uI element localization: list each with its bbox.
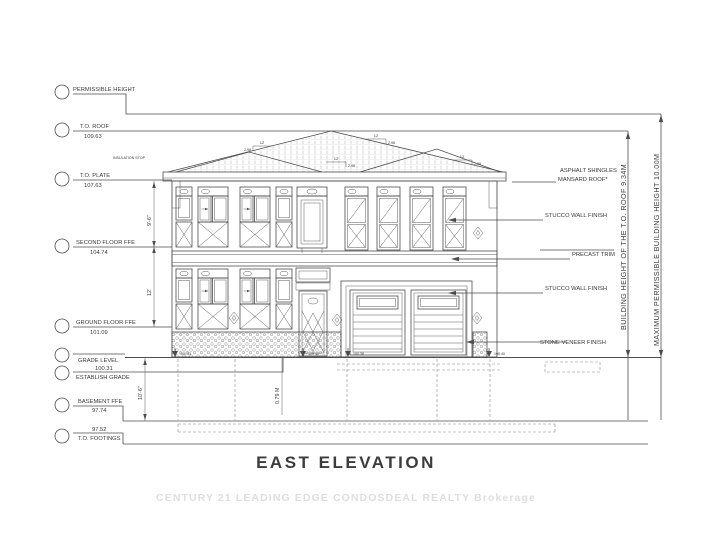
level-value: 100.31	[95, 366, 113, 372]
right-corbel	[489, 181, 497, 208]
level-value: 109.63	[84, 134, 102, 140]
precast-trim-band	[172, 251, 497, 266]
dim-plate-to-second: 9'-6"	[147, 215, 153, 226]
label-stucco-upper: STUCCO WALL FINISH	[448, 213, 607, 222]
floor-dims: 9'-6" 12' 10'-6" 0.79 M	[138, 181, 282, 421]
finish-text: STONE VENEER FINISH	[540, 340, 606, 346]
window	[240, 187, 270, 247]
slope-run: 12	[460, 154, 465, 159]
slope-run: 12	[334, 156, 339, 161]
finish-text: STUCCO WALL FINISH	[545, 286, 607, 292]
garage-door-right	[411, 290, 466, 355]
spot-elevation: 100.40	[494, 352, 505, 356]
finish-text: ASPHALT SHINGLES	[560, 168, 617, 174]
slope-rise: 2.98	[348, 164, 355, 168]
level-name: T.O. ROOF	[80, 124, 109, 130]
window	[345, 187, 368, 250]
window	[198, 269, 228, 329]
diamond-accent	[332, 314, 342, 326]
slope-rise: 2.98	[388, 141, 395, 145]
finish-text: PRECAST TRIM	[572, 252, 615, 258]
entry-tall-window	[297, 187, 327, 253]
level-name: GROUND FLOOR FFE	[76, 320, 136, 326]
dim-sill: 0.79 M	[275, 387, 281, 404]
label-asphalt-shingles: ASPHALT SHINGLES MANSARD ROOF*	[512, 168, 617, 183]
level-name: T.O. FOOTINGS	[78, 436, 121, 442]
window	[276, 269, 292, 329]
label-precast-trim: PRECAST TRIM	[451, 250, 615, 261]
grade-and-foundation: 100.33 100.40 100.38 100.40	[123, 348, 661, 444]
elevation-sheet: 12 2.98 12 2.98 12 2.98 12 2.98 INSULATI…	[0, 0, 720, 540]
window	[410, 187, 433, 250]
diamond-accent	[229, 312, 239, 324]
level-footings: 97.52 T.O. FOOTINGS	[55, 427, 123, 444]
slope-rise: 2.98	[244, 148, 251, 152]
max-height-text: MAXIMUM PERMISSIBLE BUILDING HEIGHT 10.0…	[652, 154, 661, 346]
slope-rise: 2.98	[474, 162, 481, 166]
diamond-accent	[472, 312, 482, 324]
level-name: GRADE LEVEL	[78, 358, 119, 364]
window	[176, 187, 192, 247]
window	[240, 269, 270, 329]
level-value: 97.74	[92, 408, 107, 414]
spot-elevation: 100.38	[353, 352, 364, 356]
insulation-stop-note: INSULATION STOP	[113, 156, 146, 160]
level-name: SECOND FLOOR FFE	[76, 240, 135, 246]
fascia	[163, 172, 506, 181]
level-basement: BASEMENT FFE 97.74	[55, 398, 123, 421]
level-name: BASEMENT FFE	[78, 399, 122, 405]
level-value: 104.74	[90, 250, 109, 256]
building-height-text: BUILDING HEIGHT OF THE T.O. ROOF 9.34M	[619, 164, 628, 330]
window	[176, 269, 192, 329]
spot-elevation: 100.40	[308, 352, 319, 356]
max-permissible-height-dim: MAXIMUM PERMISSIBLE BUILDING HEIGHT 10.0…	[652, 114, 663, 420]
drawing-title: EAST ELEVATION	[256, 453, 436, 472]
diamond-accent	[473, 227, 483, 239]
finish-text: STUCCO WALL FINISH	[545, 213, 607, 219]
garage-door-left	[350, 290, 405, 355]
dim-grade-to-footing: 10'-6"	[138, 386, 144, 400]
house	[172, 181, 497, 357]
finish-text: MANSARD ROOF*	[558, 177, 608, 183]
level-permissible-height: PERMISSIBLE HEIGHT	[55, 85, 661, 114]
window	[377, 187, 400, 250]
level-value: 97.52	[92, 427, 107, 433]
elevation-drawing: 12 2.98 12 2.98 12 2.98 12 2.98 INSULATI…	[0, 0, 720, 540]
level-value: 107.63	[84, 183, 102, 189]
building-height-dim: BUILDING HEIGHT OF THE T.O. ROOF 9.34M	[619, 131, 630, 420]
level-name: PERMISSIBLE HEIGHT	[73, 87, 136, 93]
dim-second-to-ground: 12'	[147, 289, 153, 296]
stone-veneer-patch	[473, 332, 487, 357]
watermark: CENTURY 21 LEADING EDGE CONDOSDEAL REALT…	[156, 492, 536, 504]
window	[198, 187, 228, 247]
slope-run: 12	[374, 133, 379, 138]
window	[276, 187, 292, 247]
roof: 12 2.98 12 2.98 12 2.98 12 2.98	[163, 131, 506, 181]
spot-elevation: 100.33	[180, 352, 191, 356]
level-grade: GRADE LEVEL	[55, 348, 125, 364]
slope-run: 12	[260, 140, 265, 145]
level-name: T.O. PLATE	[80, 173, 110, 179]
level-name: ESTABLISH GRADE	[76, 375, 130, 381]
level-value: 101.09	[90, 330, 108, 336]
